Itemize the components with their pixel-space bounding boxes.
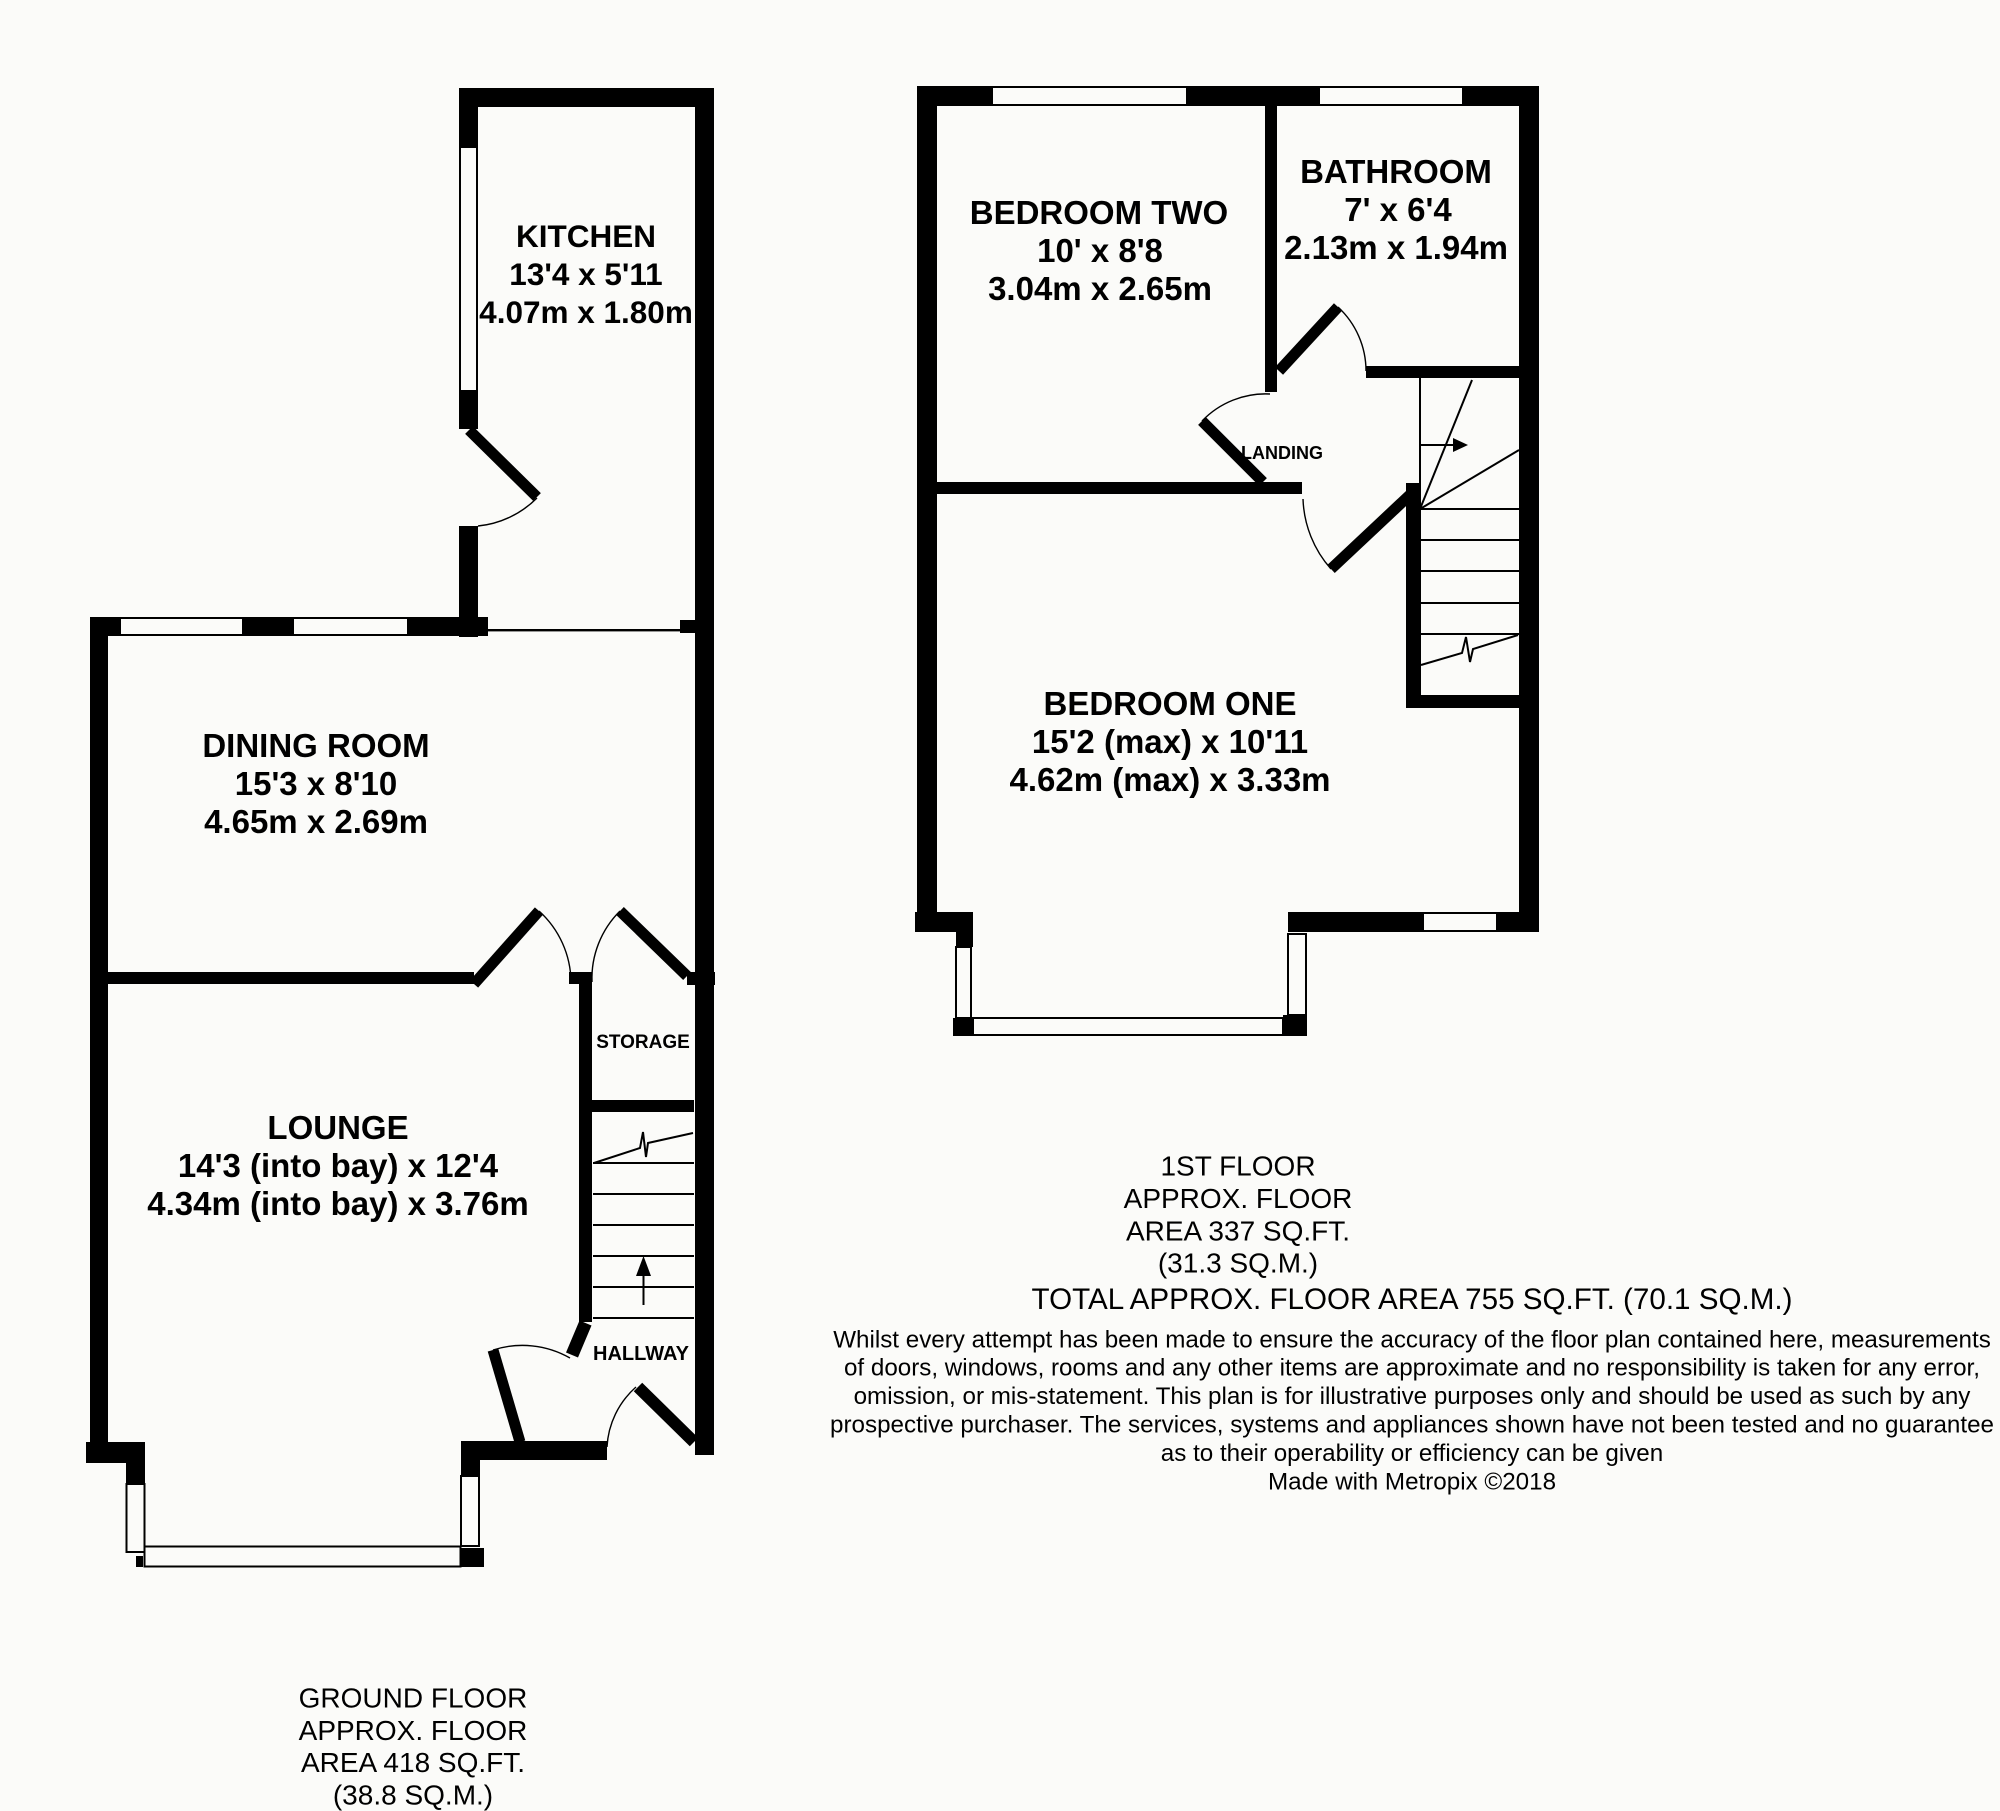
svg-text:15'2 (max) x 10'11: 15'2 (max) x 10'11	[1032, 723, 1308, 760]
svg-text:4.07m x 1.80m: 4.07m x 1.80m	[479, 294, 693, 330]
svg-text:TOTAL APPROX. FLOOR AREA 755 S: TOTAL APPROX. FLOOR AREA 755 SQ.FT. (70.…	[1032, 1283, 1793, 1316]
svg-text:Made with Metropix ©2018: Made with Metropix ©2018	[1268, 1468, 1556, 1495]
svg-text:of doors, windows, rooms and a: of doors, windows, rooms and any other i…	[844, 1355, 1980, 1382]
svg-text:BEDROOM TWO: BEDROOM TWO	[970, 194, 1228, 231]
svg-text:BATHROOM: BATHROOM	[1300, 153, 1492, 190]
svg-text:BEDROOM ONE: BEDROOM ONE	[1043, 685, 1296, 722]
svg-text:4.62m (max) x 3.33m: 4.62m (max) x 3.33m	[1009, 761, 1330, 798]
svg-text:HALLWAY: HALLWAY	[593, 1343, 690, 1365]
svg-text:AREA 418 SQ.FT.: AREA 418 SQ.FT.	[301, 1747, 525, 1778]
svg-text:Whilst every attempt has been: Whilst every attempt has been made to en…	[833, 1326, 1991, 1353]
svg-text:AREA 337 SQ.FT.: AREA 337 SQ.FT.	[1126, 1215, 1350, 1246]
svg-text:4.65m x 2.69m: 4.65m x 2.69m	[204, 803, 428, 840]
svg-text:APPROX. FLOOR: APPROX. FLOOR	[1124, 1183, 1353, 1214]
svg-text:2.13m x 1.94m: 2.13m x 1.94m	[1284, 229, 1508, 266]
svg-text:14'3 (into bay) x 12'4: 14'3 (into bay) x 12'4	[178, 1147, 499, 1184]
svg-text:LOUNGE: LOUNGE	[267, 1109, 408, 1146]
svg-text:STORAGE: STORAGE	[596, 1032, 690, 1053]
svg-text:4.34m (into bay) x 3.76m: 4.34m (into bay) x 3.76m	[147, 1185, 528, 1222]
svg-text:15'3 x 8'10: 15'3 x 8'10	[235, 765, 398, 802]
svg-text:(31.3 SQ.M.): (31.3 SQ.M.)	[1158, 1248, 1318, 1279]
svg-text:13'4 x 5'11: 13'4 x 5'11	[509, 256, 662, 292]
svg-text:(38.8 SQ.M.): (38.8 SQ.M.)	[333, 1780, 493, 1811]
svg-text:10' x 8'8: 10' x 8'8	[1037, 232, 1163, 269]
svg-text:LANDING: LANDING	[1241, 443, 1323, 463]
svg-text:GROUND FLOOR: GROUND FLOOR	[299, 1682, 528, 1713]
svg-text:DINING ROOM: DINING ROOM	[202, 727, 429, 764]
svg-text:7' x 6'4: 7' x 6'4	[1344, 191, 1452, 228]
svg-text:3.04m x 2.65m: 3.04m x 2.65m	[988, 270, 1212, 307]
svg-text:omission, or mis-statement. Th: omission, or mis-statement. This plan is…	[854, 1383, 1972, 1410]
svg-text:as to their operability or eff: as to their operability or efficiency ca…	[1161, 1440, 1663, 1467]
svg-text:KITCHEN: KITCHEN	[516, 218, 656, 254]
svg-text:1ST FLOOR: 1ST FLOOR	[1160, 1151, 1315, 1182]
svg-text:APPROX. FLOOR: APPROX. FLOOR	[299, 1715, 528, 1746]
svg-text:prospective purchaser. The ser: prospective purchaser. The services, sys…	[830, 1412, 1994, 1439]
